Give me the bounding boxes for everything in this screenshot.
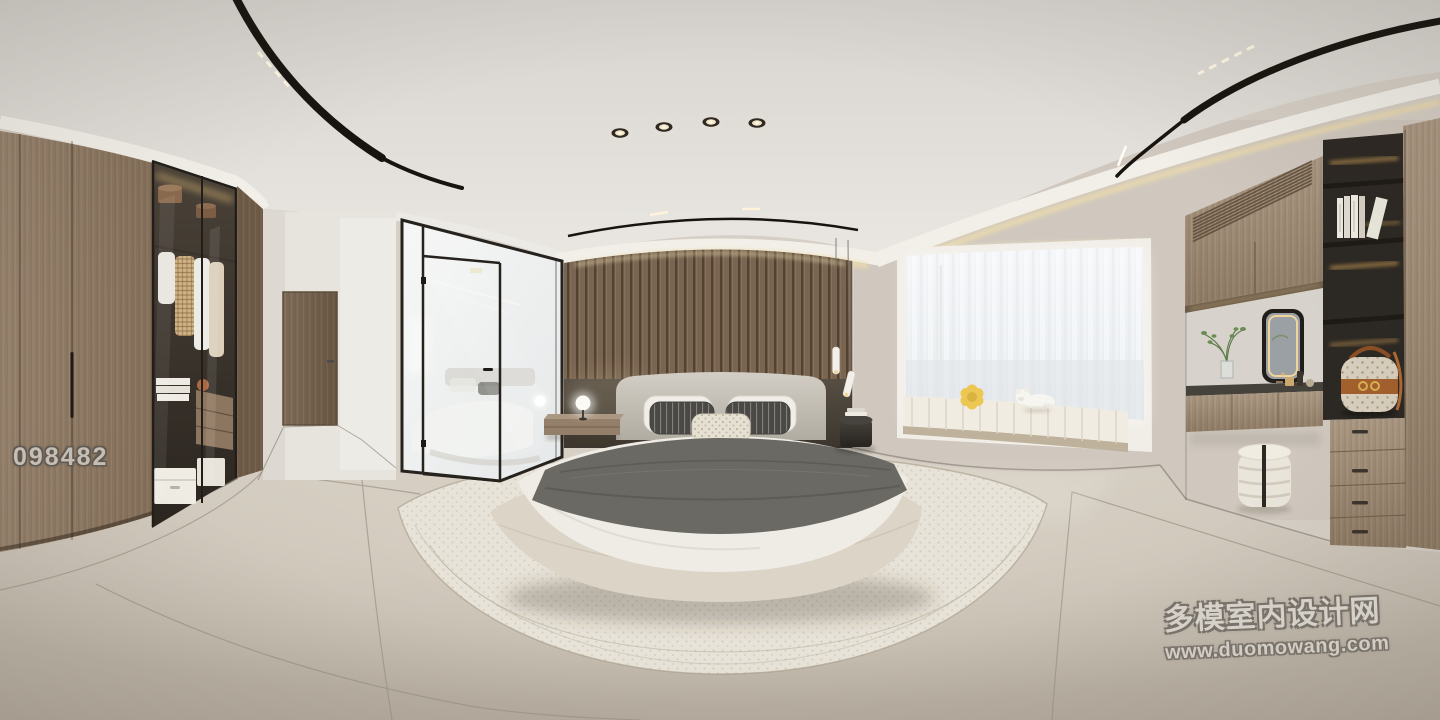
watermark-photo-id: 098482 — [13, 443, 108, 472]
watermark-site: 多模室内设计网 www.duomowang.com — [1163, 585, 1390, 665]
panorama-viewport: 098482 多模室内设计网 www.duomowang.com — [0, 0, 1440, 720]
watermark-site-name: 多模室内设计网 — [1163, 585, 1389, 639]
